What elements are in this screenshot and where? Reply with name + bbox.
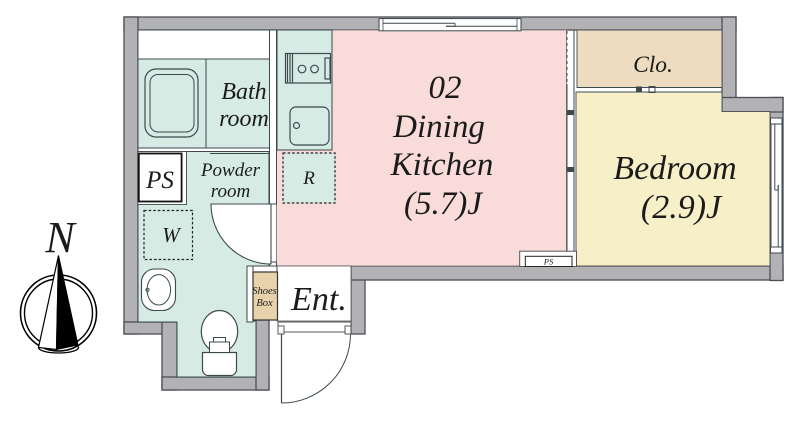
svg-text:02: 02 [429, 70, 462, 106]
svg-text:PS: PS [543, 257, 554, 267]
svg-text:Clo.: Clo. [633, 52, 673, 78]
svg-text:Bath: Bath [221, 79, 266, 105]
svg-text:PS: PS [145, 167, 174, 194]
svg-text:Kitchen: Kitchen [390, 147, 494, 183]
svg-text:W: W [162, 223, 182, 247]
svg-text:room: room [219, 106, 269, 132]
svg-text:Ent.: Ent. [290, 281, 347, 318]
svg-text:Box: Box [256, 298, 273, 309]
svg-text:Powder: Powder [200, 160, 261, 181]
svg-text:(5.7)J: (5.7)J [404, 186, 483, 222]
svg-text:room: room [211, 181, 250, 202]
svg-text:N: N [44, 213, 77, 262]
svg-text:Shoes: Shoes [252, 286, 277, 297]
svg-text:Bedroom: Bedroom [613, 150, 736, 187]
svg-text:Dining: Dining [392, 109, 485, 145]
svg-text:(2.9)J: (2.9)J [641, 189, 723, 226]
svg-text:R: R [302, 168, 315, 189]
